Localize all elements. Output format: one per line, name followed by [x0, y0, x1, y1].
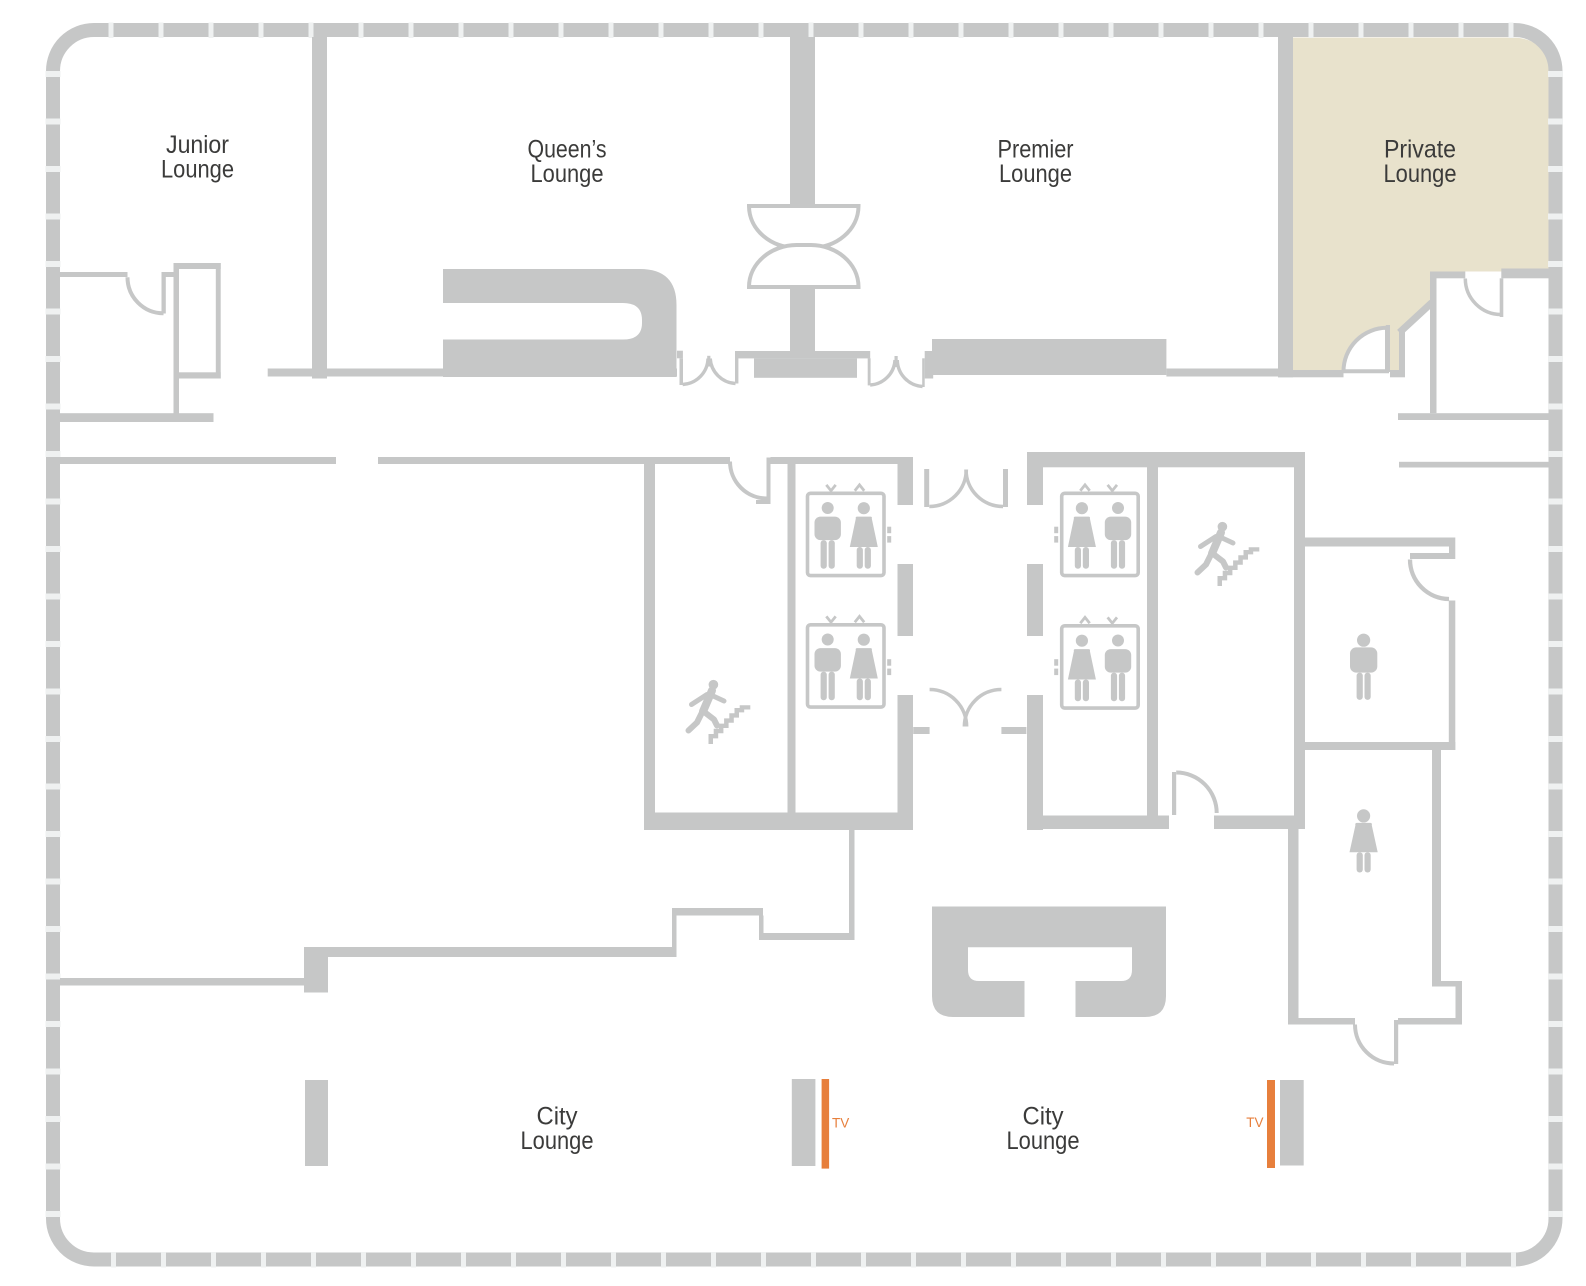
svg-text:Lounge: Lounge	[521, 1127, 594, 1155]
svg-text:Lounge: Lounge	[1384, 160, 1457, 188]
svg-text:Lounge: Lounge	[999, 160, 1072, 188]
svg-text:TV: TV	[1246, 1115, 1263, 1130]
svg-text:Lounge: Lounge	[161, 156, 234, 184]
svg-text:Lounge: Lounge	[1007, 1127, 1080, 1155]
svg-text:Lounge: Lounge	[531, 160, 604, 188]
svg-text:TV: TV	[832, 1116, 849, 1131]
